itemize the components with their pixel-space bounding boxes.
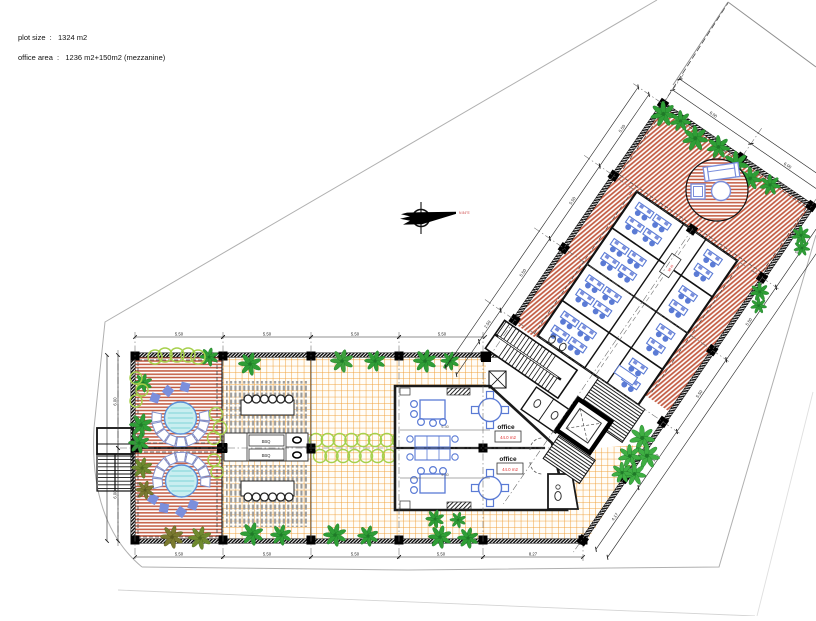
svg-text:N 84°E: N 84°E — [459, 211, 471, 215]
svg-text:9.30: 9.30 — [441, 425, 448, 429]
svg-text:5.50: 5.50 — [175, 552, 184, 557]
svg-text:BBQ: BBQ — [262, 439, 272, 444]
svg-text:5.50: 5.50 — [175, 332, 184, 337]
svg-text:6.00: 6.00 — [113, 490, 118, 499]
svg-text:office: office — [499, 456, 517, 463]
svg-text:5.50: 5.50 — [351, 332, 360, 337]
svg-text:office area : 1236 m2+150m2: office area : 1236 m2+150m2 (mezzanine) — [18, 53, 166, 62]
svg-text:office: office — [497, 424, 515, 431]
svg-text:9.30: 9.30 — [441, 473, 448, 477]
svg-text:5.50: 5.50 — [438, 332, 447, 337]
svg-text:44.0 m2: 44.0 m2 — [500, 435, 516, 440]
svg-text:6.00: 6.00 — [113, 397, 118, 406]
svg-text:5.50: 5.50 — [351, 552, 360, 557]
svg-text:5.50: 5.50 — [263, 332, 272, 337]
svg-text:plot size : 1324 m2: plot size : 1324 m2 — [18, 33, 87, 42]
svg-text:5.50: 5.50 — [437, 552, 446, 557]
svg-text:BBQ: BBQ — [262, 453, 272, 458]
svg-text:8.27: 8.27 — [529, 552, 538, 557]
svg-text:5.50: 5.50 — [263, 552, 272, 557]
svg-text:44.0 m2: 44.0 m2 — [502, 467, 518, 472]
